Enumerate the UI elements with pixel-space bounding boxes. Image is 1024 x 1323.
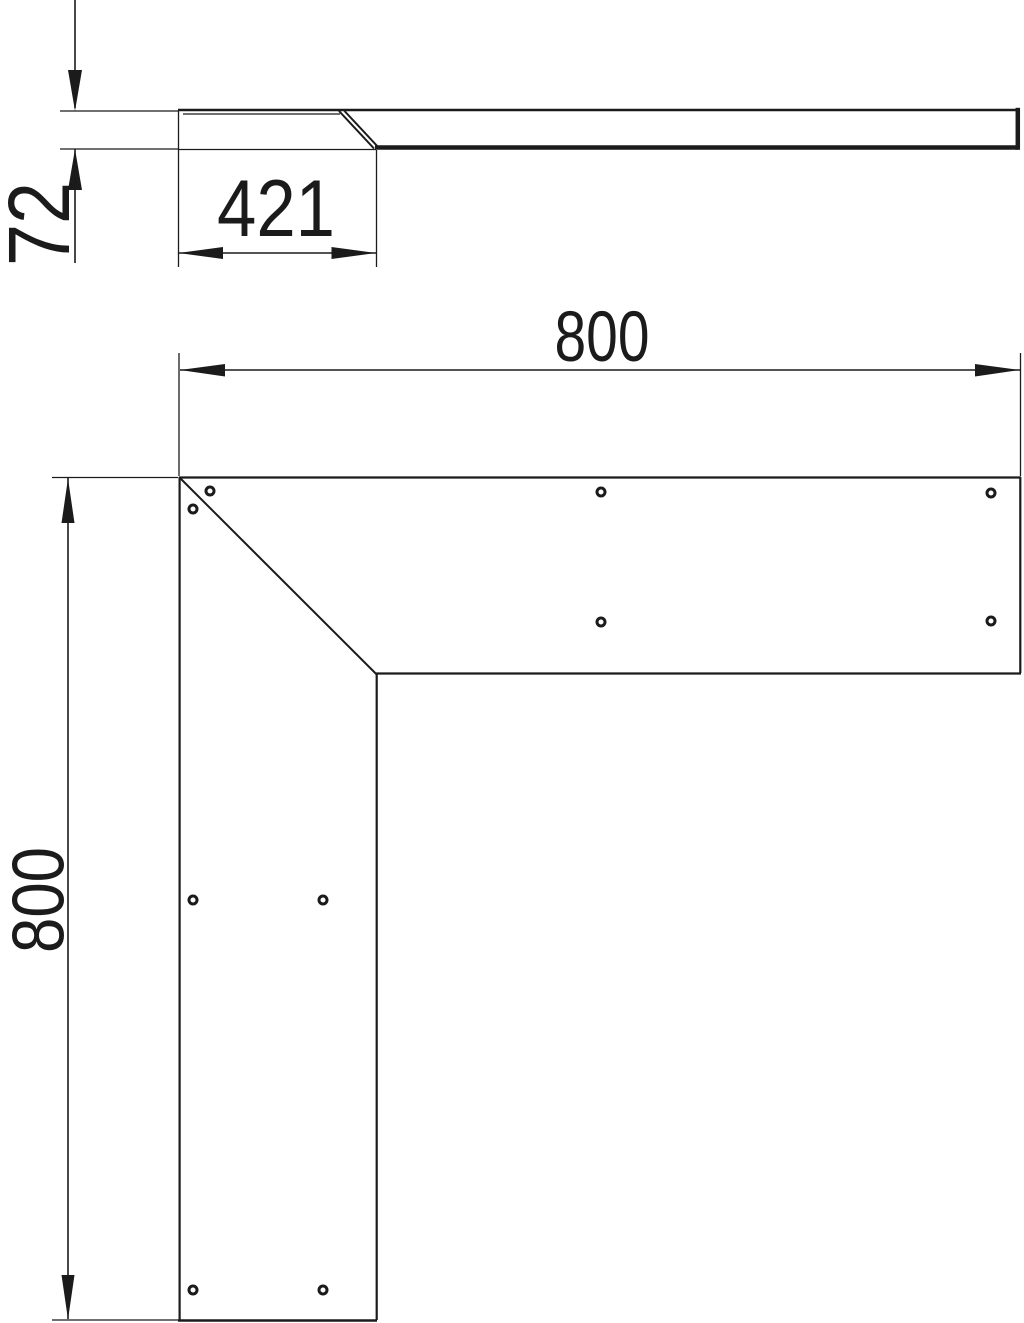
dim-label-800-top: 800 [555, 298, 650, 377]
profile-chamfer-line-1 [339, 111, 374, 149]
plan-view-l-shape: 800 800 [0, 298, 1021, 1321]
dim-800-left-up-arrowhead [62, 479, 75, 524]
mounting-hole [206, 487, 214, 495]
technical-drawing: 72 421 800 [0, 0, 1024, 1323]
mounting-hole [189, 896, 197, 904]
mounting-hole [987, 489, 995, 497]
mounting-hole [319, 1286, 327, 1294]
dim-421-right-arrowhead [332, 247, 377, 259]
mounting-hole [189, 1286, 197, 1294]
mounting-hole [597, 488, 605, 496]
mounting-hole [189, 505, 197, 513]
dim-800-top-right-arrowhead [975, 364, 1020, 377]
mounting-hole [987, 617, 995, 625]
drawing-canvas: 72 421 800 [0, 0, 1024, 1323]
mounting-hole [597, 618, 605, 626]
dim-label-421: 421 [217, 164, 335, 254]
side-profile-view: 72 421 [0, 0, 1018, 267]
profile-chamfer-line-2 [345, 111, 380, 149]
dim-label-72: 72 [0, 182, 88, 266]
dim-72-down-arrowhead [68, 70, 82, 111]
dim-800-left-down-arrowhead [62, 1275, 75, 1320]
mounting-hole [319, 896, 327, 904]
dim-label-800-left: 800 [0, 847, 80, 953]
dim-800-top-left-arrowhead [180, 364, 225, 377]
lshape-corner-diagonal [180, 478, 377, 675]
